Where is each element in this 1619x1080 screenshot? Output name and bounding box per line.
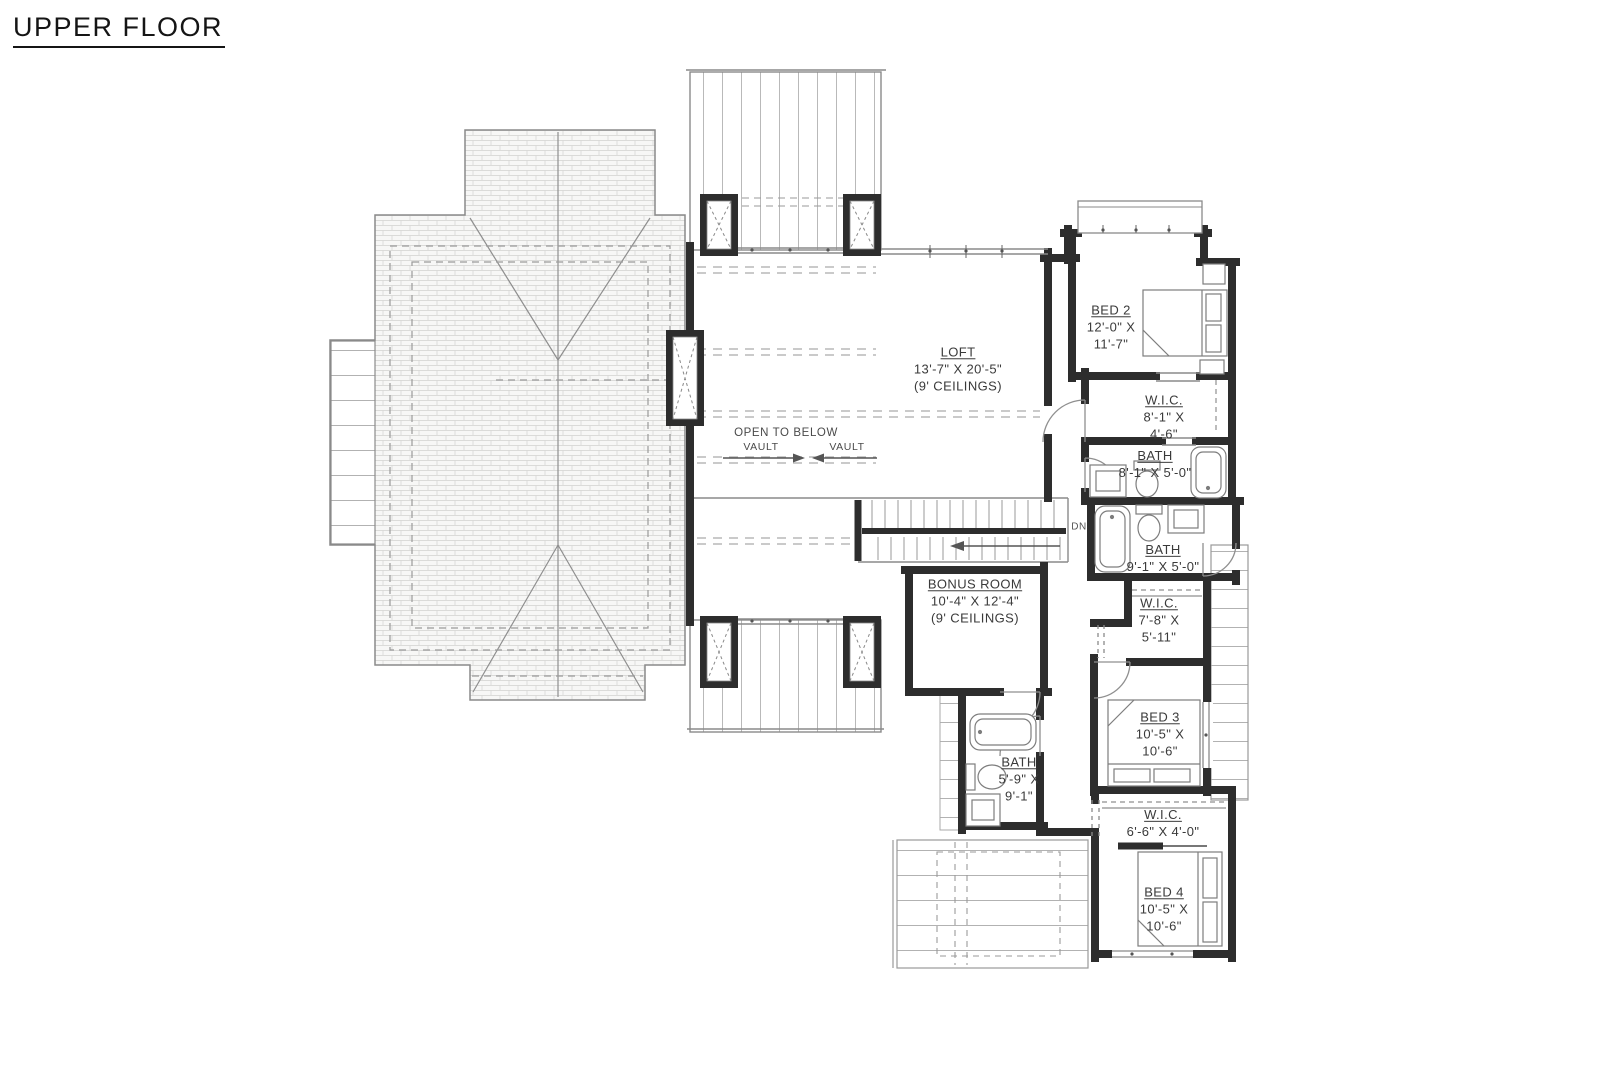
bed3-window bbox=[1201, 702, 1213, 768]
bed4-window bbox=[1112, 948, 1193, 960]
bath4-fixtures bbox=[966, 714, 1036, 826]
floor-plan-drawing bbox=[0, 0, 1619, 1080]
bed3-bed bbox=[1108, 700, 1200, 786]
vault-arrows bbox=[723, 454, 877, 463]
bed2-bay-window bbox=[1078, 201, 1202, 233]
bed2-bed bbox=[1143, 264, 1227, 374]
post-bottom-right bbox=[843, 616, 881, 688]
floor-plan-page: UPPER FLOOR bbox=[0, 0, 1619, 1080]
bed4-bed bbox=[1138, 852, 1222, 946]
bed3-door bbox=[1094, 662, 1130, 698]
roof-plan bbox=[330, 130, 685, 700]
post-top-right bbox=[843, 194, 881, 256]
post-bottom-left bbox=[700, 616, 738, 688]
loft-side-window-bay bbox=[666, 330, 704, 426]
stair-direction-arrow bbox=[950, 541, 964, 551]
loft-window-band bbox=[881, 245, 1048, 258]
post-top-left bbox=[700, 194, 738, 256]
deck-window-bands bbox=[738, 248, 843, 624]
bottom-roof bbox=[897, 840, 1088, 968]
opening-headers bbox=[1156, 373, 1200, 445]
structural-posts bbox=[666, 194, 881, 688]
right-roof-strip bbox=[1211, 545, 1248, 800]
staircase bbox=[690, 498, 1068, 562]
bath3-fixtures bbox=[1095, 505, 1204, 572]
bath2-fixtures bbox=[1090, 447, 1226, 498]
roof-chimney bbox=[331, 341, 375, 544]
